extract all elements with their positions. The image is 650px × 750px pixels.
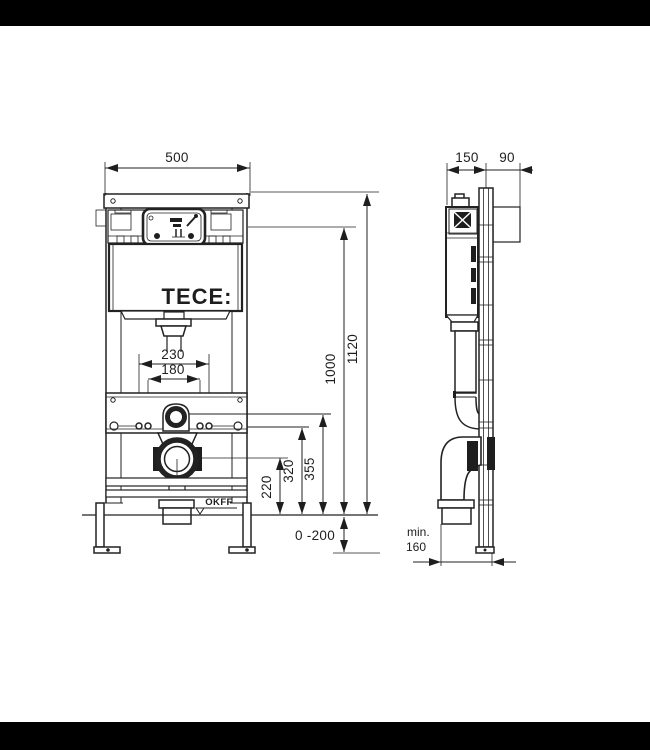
screenshot-canvas: TECE: 230 180 <box>0 0 650 750</box>
side-view: 150 90 <box>406 150 533 566</box>
dim-label-160: 160 <box>406 540 426 554</box>
dim-label-min: min. <box>407 525 430 539</box>
dim-label-150: 150 <box>455 150 478 165</box>
dim-height-355: 355 <box>302 415 327 514</box>
bottom-cross-members <box>106 478 247 497</box>
dim-label-180: 180 <box>161 362 184 377</box>
cistern-side <box>446 194 478 322</box>
dim-label-500: 500 <box>165 150 188 165</box>
dim-label-230: 230 <box>161 347 184 362</box>
frame-top-plate <box>104 194 249 208</box>
front-view: TECE: 230 180 <box>82 150 380 553</box>
cistern-front: TECE: <box>109 244 242 319</box>
dim-label-0-200: 0 -200 <box>295 528 335 543</box>
anchor-holes <box>110 422 309 430</box>
technical-drawing: TECE: 230 180 <box>0 0 650 750</box>
wall-box <box>493 207 520 242</box>
dim-label-320: 320 <box>281 459 296 482</box>
dim-height-220: 220 <box>259 458 284 514</box>
dim-label-355: 355 <box>302 457 317 480</box>
dim-foot-adjust-0-200: 0 -200 <box>295 517 380 553</box>
actuator-access-box <box>143 209 205 245</box>
okff-label: OKFF <box>205 497 232 508</box>
outlet-socket-front <box>159 500 194 524</box>
dim-height-320: 320 <box>281 428 306 514</box>
floor-reference: OKFF <box>196 497 237 514</box>
dim-label-220: 220 <box>259 475 274 498</box>
dim-frame-width-500: 500 <box>105 150 250 196</box>
dim-label-1000: 1000 <box>323 353 338 384</box>
dim-min-160: min. 160 <box>406 524 516 566</box>
flush-pipe-side <box>451 322 479 429</box>
tece-logo: TECE: <box>162 284 233 309</box>
dim-label-1120: 1120 <box>345 334 360 364</box>
dim-label-90: 90 <box>499 150 515 165</box>
